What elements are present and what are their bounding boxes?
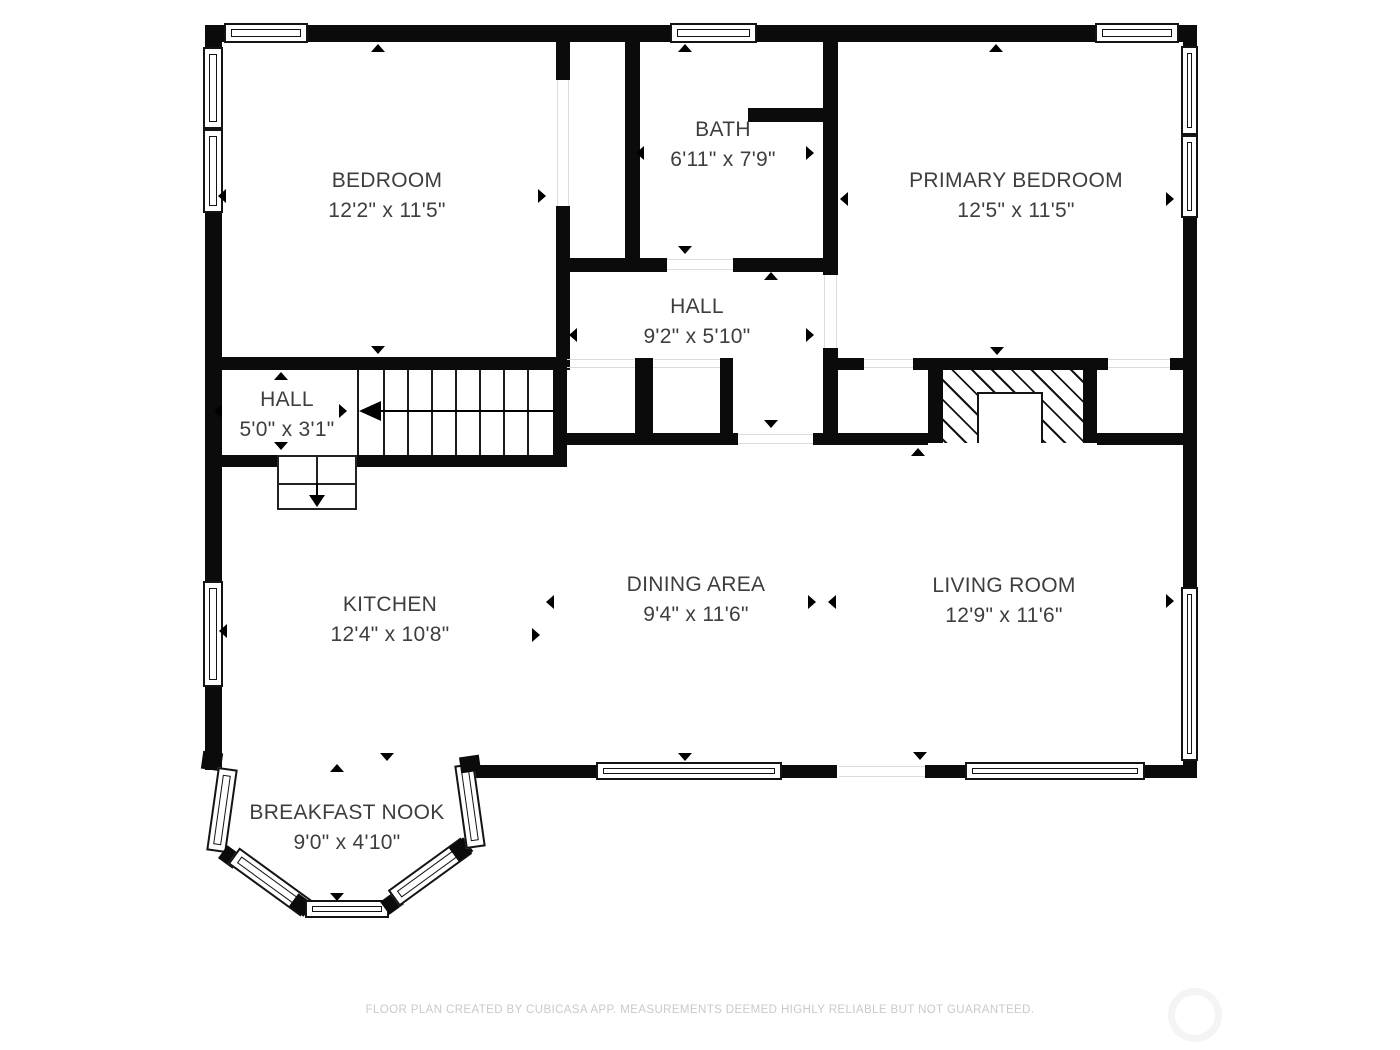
wall (823, 42, 838, 275)
stair-tread (527, 370, 529, 455)
window (1181, 46, 1198, 135)
dimension-arrow-left (546, 595, 554, 609)
dimension-arrow-right (532, 628, 540, 642)
dimension-arrow-right (1166, 594, 1174, 608)
room-label-living-room: LIVING ROOM 12'9" x 11'6" (932, 571, 1075, 631)
dimension-arrow-up (274, 372, 288, 380)
room-dims: 9'0" x 4'10" (249, 828, 444, 858)
room-label-bath: BATH 6'11" x 7'9" (670, 115, 776, 175)
dimension-arrow-right (808, 595, 816, 609)
window (670, 23, 757, 43)
dimension-arrow-right (339, 404, 347, 418)
dimension-arrow-right (806, 328, 814, 342)
wall (1097, 433, 1197, 445)
stair-tread (431, 370, 433, 455)
room-label-kitchen: KITCHEN 12'4" x 10'8" (330, 590, 449, 650)
room-name: BREAKFAST NOOK (249, 798, 444, 828)
room-name: KITCHEN (330, 590, 449, 620)
firebox (977, 392, 1043, 443)
room-name: LIVING ROOM (932, 571, 1075, 601)
room-dims: 12'2" x 11'5" (328, 196, 446, 226)
door-threshold (653, 367, 720, 368)
door-threshold (667, 269, 733, 270)
door-threshold (864, 367, 913, 368)
stair-tread (455, 370, 457, 455)
room-name: HALL (643, 292, 750, 322)
door-threshold (824, 275, 825, 348)
room-name: HALL (239, 385, 334, 415)
room-name: BATH (670, 115, 776, 145)
dimension-arrow-left (214, 404, 222, 418)
dimension-arrow-down (678, 246, 692, 254)
room-dims: 9'4" x 11'6" (627, 600, 766, 630)
dimension-arrow-up (371, 44, 385, 52)
room-label-primary-bedroom: PRIMARY BEDROOM 12'5" x 11'5" (909, 166, 1123, 226)
room-dims: 5'0" x 3'1" (239, 415, 334, 445)
room-dims: 9'2" x 5'10" (643, 322, 750, 352)
floor-plan-page: BEDROOM 12'2" x 11'5" BATH 6'11" x 7'9" … (0, 0, 1400, 1050)
wall (556, 206, 570, 357)
stair-tread (479, 370, 481, 455)
wall (556, 258, 667, 272)
wall (780, 765, 837, 778)
dimension-arrow-down (380, 753, 394, 761)
door-threshold (1108, 359, 1170, 360)
stair-tread (503, 370, 505, 455)
door-threshold (653, 359, 720, 360)
room-name: DINING AREA (627, 570, 766, 600)
dimension-arrow-down (764, 420, 778, 428)
door-threshold (738, 443, 813, 444)
dimension-arrow-down (330, 893, 344, 901)
staircase (357, 370, 553, 455)
stair-direction-line (375, 410, 555, 412)
dimension-arrow-up (989, 44, 1003, 52)
wall (913, 358, 1108, 370)
window (1181, 135, 1198, 218)
dimension-arrow-down (990, 347, 1004, 355)
door-threshold (1108, 367, 1170, 368)
door-threshold (567, 367, 635, 368)
door-threshold (567, 359, 635, 360)
room-dims: 12'9" x 11'6" (932, 601, 1075, 631)
dimension-arrow-right (1166, 192, 1174, 206)
wall (553, 357, 567, 467)
dimension-arrow-up (678, 44, 692, 52)
room-name: BEDROOM (328, 166, 446, 196)
wall (205, 357, 570, 370)
dimension-arrow-left (840, 192, 848, 206)
window (965, 762, 1145, 780)
room-name: PRIMARY BEDROOM (909, 166, 1123, 196)
window (203, 47, 223, 129)
wall (928, 370, 943, 443)
window (1181, 587, 1198, 761)
room-dims: 12'5" x 11'5" (909, 196, 1123, 226)
bay-window (206, 767, 237, 853)
room-label-dining-area: DINING AREA 9'4" x 11'6" (627, 570, 766, 630)
room-dims: 12'4" x 10'8" (330, 620, 449, 650)
door-threshold (557, 80, 558, 206)
window (596, 762, 782, 780)
bay-corner (459, 755, 481, 774)
dimension-arrow-down (913, 752, 927, 760)
dimension-arrow-left (219, 624, 227, 638)
wall (823, 348, 838, 445)
wall (1083, 370, 1097, 443)
door-threshold (667, 259, 733, 260)
door-threshold (839, 776, 925, 777)
dimension-arrow-down (678, 753, 692, 761)
stair-landing (277, 455, 357, 510)
wall (205, 455, 567, 467)
window (1095, 23, 1179, 43)
stair-tread (407, 370, 409, 455)
landing-divider (316, 457, 318, 483)
wall (470, 765, 598, 778)
door-threshold (836, 275, 837, 348)
dimension-arrow-left (636, 146, 644, 160)
stair-down-arrow (309, 495, 325, 507)
dimension-arrow-left (828, 595, 836, 609)
wall (837, 358, 864, 370)
wall (635, 358, 653, 435)
dimension-arrow-right (806, 146, 814, 160)
wall (925, 765, 967, 778)
bay-window (305, 900, 389, 918)
dimension-arrow-up (911, 448, 925, 456)
window (224, 23, 308, 43)
room-label-bedroom: BEDROOM 12'2" x 11'5" (328, 166, 446, 226)
door-threshold (568, 80, 569, 206)
dimension-arrow-left (569, 328, 577, 342)
stair-tread (383, 370, 385, 455)
dimension-arrow-right (538, 189, 546, 203)
dimension-arrow-down (371, 346, 385, 354)
room-label-hall-upper: HALL 9'2" x 5'10" (643, 292, 750, 352)
stair-direction-arrow (359, 401, 381, 421)
door-threshold (839, 766, 925, 767)
watermark-circle-logo-icon (1168, 988, 1222, 1042)
dimension-arrow-up (764, 272, 778, 280)
door-threshold (738, 434, 813, 435)
wall (556, 42, 570, 80)
room-dims: 6'11" x 7'9" (670, 145, 776, 175)
dimension-arrow-up (330, 764, 344, 772)
door-threshold (864, 359, 913, 360)
dimension-arrow-left (218, 189, 226, 203)
room-label-breakfast-nook: BREAKFAST NOOK 9'0" x 4'10" (249, 798, 444, 858)
room-label-hall-stairs: HALL 5'0" x 3'1" (239, 385, 334, 445)
wall (720, 358, 733, 435)
